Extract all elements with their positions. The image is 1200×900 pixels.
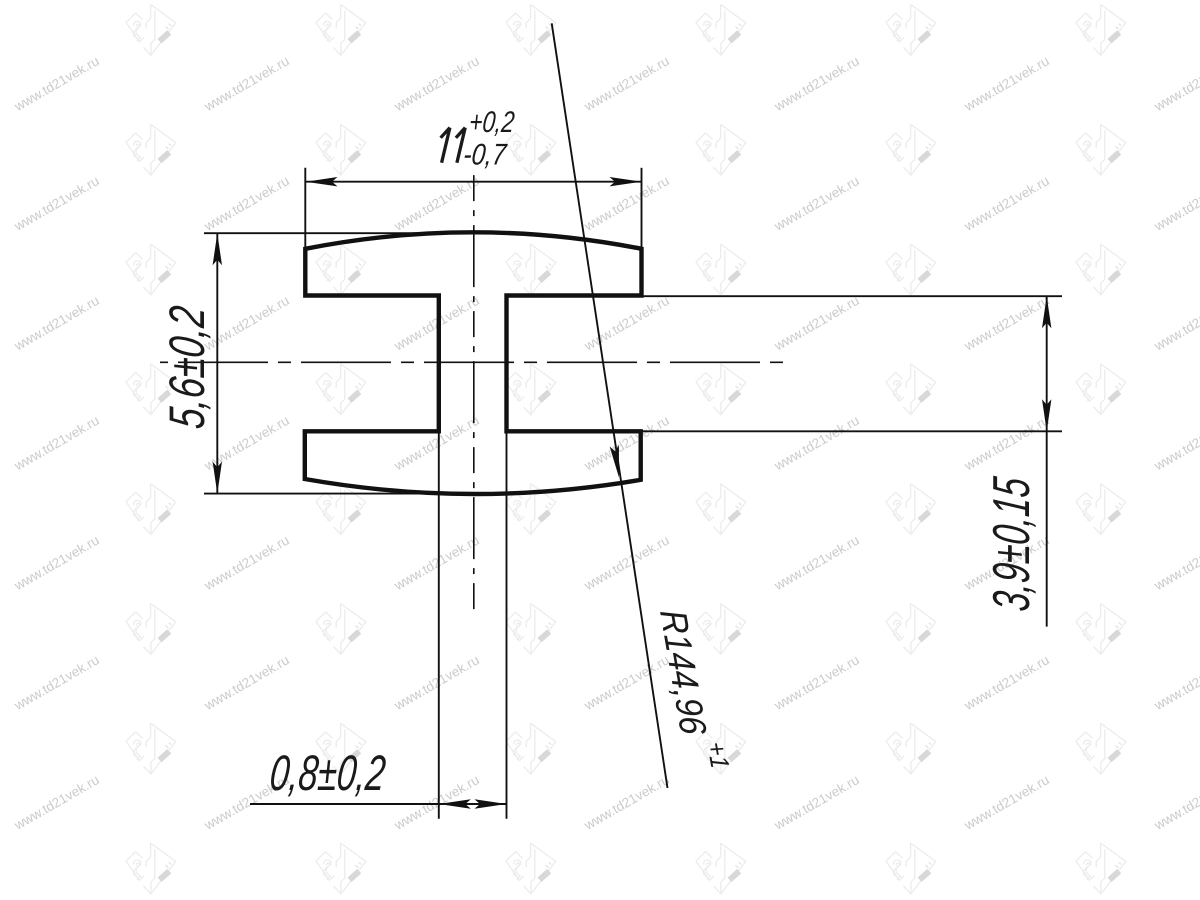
svg-text:-0,7: -0,7 bbox=[462, 138, 509, 171]
svg-text:+1: +1 bbox=[701, 741, 736, 770]
svg-text:+0,2: +0,2 bbox=[468, 106, 517, 139]
svg-text:5,6±0,2: 5,6±0,2 bbox=[159, 303, 215, 431]
svg-text:0,8±0,2: 0,8±0,2 bbox=[267, 745, 388, 801]
svg-text:3,9±0,15: 3,9±0,15 bbox=[983, 474, 1041, 614]
